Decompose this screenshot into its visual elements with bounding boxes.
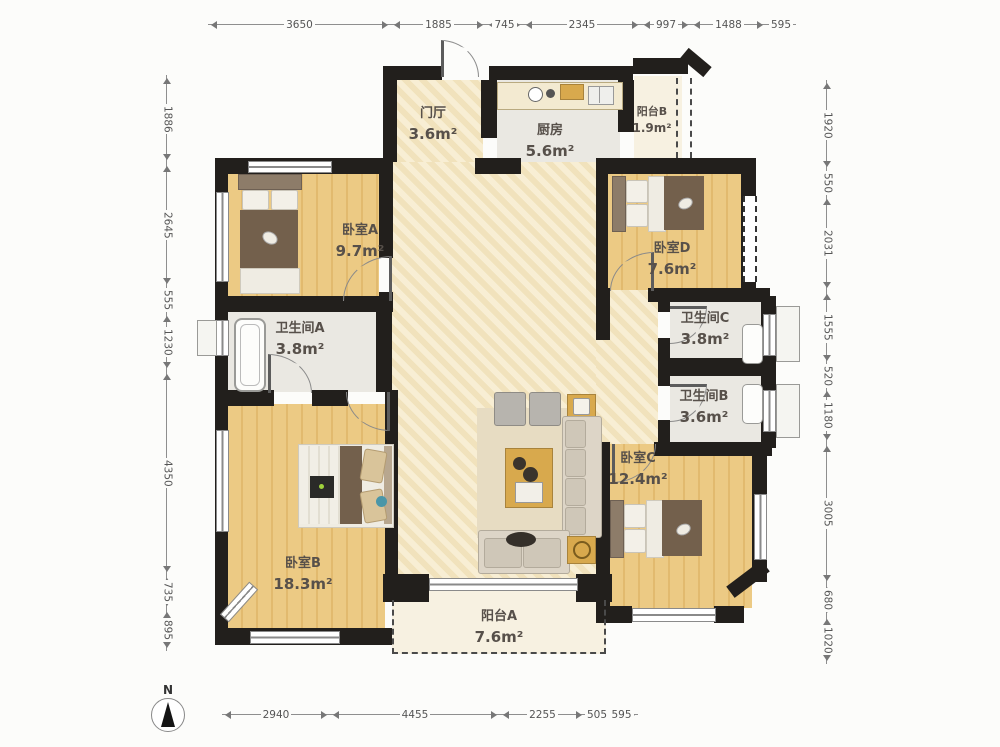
decor-icon bbox=[376, 496, 387, 507]
room-label-bedroom-c: 卧室C12.4m² bbox=[608, 450, 667, 491]
wall bbox=[633, 58, 688, 74]
wall bbox=[489, 66, 633, 80]
wall bbox=[658, 420, 670, 444]
window bbox=[754, 494, 767, 560]
ac-platform bbox=[776, 306, 800, 362]
pillow-icon bbox=[271, 190, 298, 210]
decor-icon bbox=[513, 457, 526, 470]
double-sink-icon bbox=[588, 86, 614, 105]
pillow-icon bbox=[242, 190, 269, 210]
compass-needle-icon bbox=[161, 702, 175, 727]
balcony-a-dashed-edge bbox=[392, 652, 606, 654]
bed-icon bbox=[612, 176, 626, 232]
wall bbox=[714, 606, 744, 623]
balcony-a-dashed-edge bbox=[604, 600, 606, 654]
wall bbox=[383, 80, 397, 162]
window bbox=[632, 608, 716, 622]
wall bbox=[376, 312, 392, 392]
bed-icon bbox=[610, 500, 624, 558]
decor-icon bbox=[523, 467, 538, 482]
wall bbox=[596, 302, 610, 340]
stove-icon bbox=[560, 84, 584, 100]
window bbox=[763, 314, 776, 356]
indicator-dot bbox=[319, 484, 324, 489]
sliding-window bbox=[429, 578, 578, 591]
window bbox=[763, 390, 776, 432]
room-label-bathroom-a: 卫生间A3.8m² bbox=[275, 320, 324, 361]
balcony-b-dashed-edge bbox=[676, 78, 678, 158]
wall bbox=[658, 302, 670, 312]
room-label-bathroom-c: 卫生间C3.8m² bbox=[681, 310, 730, 351]
room-label-bedroom-b: 卧室B18.3m² bbox=[273, 555, 332, 596]
ac-platform bbox=[776, 384, 800, 438]
wall bbox=[312, 390, 348, 406]
balcony-b-dashed-edge bbox=[690, 78, 692, 158]
pillow-icon bbox=[624, 504, 646, 528]
room-label-kitchen: 厨房5.6m² bbox=[526, 122, 575, 163]
wall bbox=[596, 158, 756, 174]
room-label-balcony-b: 阳台B1.9m² bbox=[632, 104, 671, 137]
bathtub-icon bbox=[234, 318, 266, 392]
sofa-cushion bbox=[565, 478, 586, 506]
ac-platform bbox=[197, 320, 217, 356]
balcony-a-dashed-edge bbox=[392, 600, 394, 654]
north-label: N bbox=[148, 684, 188, 696]
wall bbox=[648, 288, 770, 302]
wall bbox=[596, 606, 632, 623]
room-label-balcony-a: 阳台A7.6m² bbox=[475, 608, 524, 649]
faucet-icon bbox=[546, 89, 555, 98]
sofa-cushion bbox=[565, 420, 586, 448]
wall bbox=[481, 80, 497, 138]
pillow-icon bbox=[626, 204, 648, 227]
lamp-icon bbox=[573, 398, 590, 415]
window bbox=[250, 631, 340, 644]
bed-icon bbox=[240, 268, 300, 294]
decor-icon bbox=[573, 541, 591, 559]
decor-icon bbox=[506, 532, 536, 547]
sofa-cushion bbox=[565, 449, 586, 477]
room-label-bathroom-b: 卫生间B3.6m² bbox=[680, 388, 729, 429]
bed-icon bbox=[238, 174, 302, 190]
shower-icon bbox=[742, 324, 763, 364]
window bbox=[216, 320, 229, 356]
window bbox=[743, 196, 757, 282]
bed-icon bbox=[340, 446, 362, 524]
room-label-bedroom-d: 卧室D7.6m² bbox=[648, 240, 697, 281]
shower-icon bbox=[742, 384, 763, 424]
floor-plan-screenshot: 门厅3.6m² 厨房5.6m² 阳台B1.9m² 卧室A9.7m² 卧室D7.6… bbox=[0, 0, 1000, 747]
room-label-bedroom-a: 卧室A9.7m² bbox=[336, 222, 385, 263]
wall bbox=[596, 172, 608, 290]
wall bbox=[658, 338, 670, 360]
sink-divider bbox=[599, 86, 600, 103]
entry-door-arc bbox=[441, 40, 479, 77]
armchair-icon bbox=[494, 392, 526, 426]
window bbox=[248, 161, 332, 173]
wall bbox=[475, 158, 521, 174]
window bbox=[216, 430, 229, 532]
floor-plan: 门厅3.6m² 厨房5.6m² 阳台B1.9m² 卧室A9.7m² 卧室D7.6… bbox=[0, 0, 1000, 747]
compass-icon bbox=[151, 698, 185, 732]
room-label-entry-hall: 门厅3.6m² bbox=[409, 105, 458, 146]
wall bbox=[658, 376, 670, 386]
sink-icon bbox=[528, 87, 543, 102]
wall bbox=[596, 288, 610, 302]
armchair-icon bbox=[529, 392, 561, 426]
pillow-icon bbox=[624, 529, 646, 553]
north-arrow: N bbox=[148, 684, 188, 732]
pillow-icon bbox=[626, 180, 648, 203]
window bbox=[216, 192, 229, 282]
wall bbox=[383, 574, 429, 602]
tray-icon bbox=[515, 482, 543, 503]
wall bbox=[383, 66, 442, 80]
